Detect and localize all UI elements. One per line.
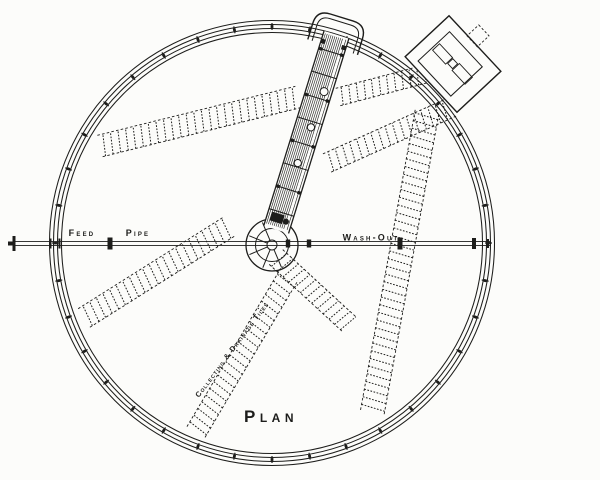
tile-strip-rungs <box>362 113 438 412</box>
distributor-arm <box>251 10 366 237</box>
arm-pipe-line <box>282 38 341 228</box>
washout-rim-tick <box>487 239 489 248</box>
pipe-rim-flange <box>59 239 61 249</box>
filter-bed-plan-drawing: FeedPipeWash-OutCollecting & Drainage Ti… <box>0 0 600 480</box>
arm-body-mask <box>264 31 349 234</box>
tile-strip <box>78 217 236 328</box>
plan-drawing-sheet: FeedPipeWash-OutCollecting & Drainage Ti… <box>0 0 600 480</box>
tile-strip-rail <box>360 110 415 412</box>
tank-rim-ring <box>58 29 487 458</box>
hub-spoke <box>249 247 267 255</box>
tile-strip <box>323 98 456 172</box>
arm-pipe-line <box>272 35 331 225</box>
tile-strip <box>97 86 300 156</box>
feed-label: Feed <box>69 228 96 238</box>
rim-rivet <box>484 279 487 282</box>
gear-house-outer-wall <box>405 16 501 113</box>
hub-pipe-coupling <box>307 240 311 248</box>
washout-label: Wash-Out <box>343 233 400 243</box>
tiles-label: Collecting & Drainage Tiles <box>193 300 270 399</box>
hub-spoke <box>274 250 282 268</box>
tank-rim-ring <box>62 33 483 454</box>
rim-rivet <box>484 204 487 207</box>
gear-house <box>405 5 512 112</box>
pipe-label: Pipe <box>126 228 150 238</box>
tile-strip <box>269 250 357 333</box>
feed-pipe-coupling <box>108 238 113 250</box>
feed-and-washout-pipe <box>8 236 491 251</box>
rim-rivet-ticks <box>52 23 492 463</box>
rim-rivet <box>233 455 236 458</box>
pipe-rim-flange <box>50 239 52 249</box>
feed-pipe-end-flange <box>13 236 16 251</box>
arm-pipe-line <box>276 36 335 226</box>
arm-pipe-line <box>280 38 339 228</box>
tile-strip-rail <box>384 114 439 416</box>
hub-spoke <box>263 250 270 268</box>
rim-rivet <box>233 28 236 31</box>
tile-strip-rail <box>97 86 295 135</box>
tile-strip-rail <box>78 217 224 309</box>
rim-rivet <box>57 204 60 207</box>
arm-pipe-line <box>278 37 337 227</box>
arm-pipe-line <box>274 36 333 226</box>
tile-strip-rungs <box>83 218 231 325</box>
washout-end-flange <box>472 238 476 249</box>
plan-caption: Plan <box>244 407 298 426</box>
tank-rim-ring <box>50 21 495 466</box>
tank-rim-ring <box>54 25 491 462</box>
tile-strip-rungs <box>271 253 355 329</box>
rim-rivet <box>271 25 274 28</box>
tile-strip-rungs <box>103 87 295 156</box>
tank-rim <box>50 21 495 466</box>
tile-strip-rail <box>323 98 448 154</box>
rim-rivet <box>308 455 311 458</box>
tile-strip <box>360 110 439 416</box>
tile-strip-rungs <box>328 101 448 171</box>
rim-rivet <box>57 279 60 282</box>
rim-rivet <box>271 458 274 461</box>
